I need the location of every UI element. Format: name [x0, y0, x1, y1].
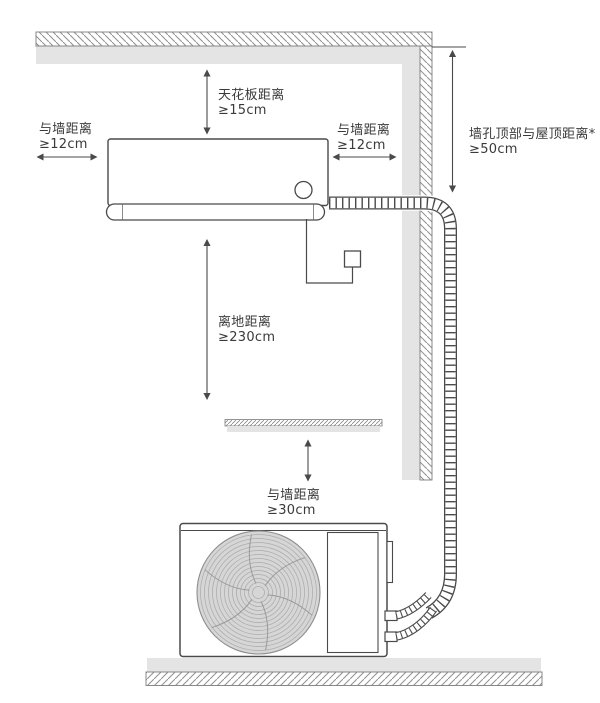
right-wall-structure [402, 46, 432, 480]
floor-distance-name: 离地距离 [218, 316, 275, 331]
right-wall-distance-label: 与墙距离 ≥12cm [337, 124, 390, 153]
floor-structure [146, 658, 542, 686]
power-cable [307, 219, 361, 283]
ceiling-distance-value: ≥15cm [218, 104, 285, 119]
outdoor-wall-distance-name: 与墙距离 [267, 489, 320, 504]
ceiling-structure [36, 32, 432, 64]
right-wall-distance-value: ≥12cm [337, 139, 390, 154]
valve-fitting-top [385, 611, 397, 621]
diagram-canvas [0, 0, 600, 703]
left-wall-distance-value: ≥12cm [39, 138, 92, 153]
indoor-floor-reference-shelf [225, 420, 382, 433]
floor-distance-value: ≥230cm [218, 331, 275, 346]
outdoor-unit-handle [387, 542, 393, 583]
valve-fitting-bottom [385, 632, 397, 642]
left-wall-distance-label: 与墙距离 ≥12cm [39, 123, 92, 152]
indoor-unit-indicator [295, 182, 312, 199]
right-wall-distance-name: 与墙距离 [337, 124, 390, 139]
floor-distance-label: 离地距离 ≥230cm [218, 316, 275, 345]
wall-hole-roof-distance-label: 墙孔顶部与屋顶距离* ≥50cm [469, 128, 596, 157]
wall-hole-roof-distance-name: 墙孔顶部与屋顶距离* [469, 128, 596, 143]
left-wall-distance-name: 与墙距离 [39, 123, 92, 138]
connection-hoses [396, 595, 434, 637]
outdoor-wall-distance-value: ≥30cm [267, 504, 320, 519]
indoor-unit-louver [107, 204, 325, 220]
outdoor-wall-distance-label: 与墙距离 ≥30cm [267, 489, 320, 518]
wall-hole-roof-distance-value: ≥50cm [469, 143, 596, 158]
indoor-unit [107, 139, 329, 220]
outdoor-unit [180, 524, 397, 657]
ceiling-distance-name: 天花板距离 [218, 89, 285, 104]
junction-box [345, 251, 361, 267]
outdoor-fan [197, 531, 320, 654]
installation-diagram: 天花板距离 ≥15cm 与墙距离 ≥12cm 与墙距离 ≥12cm 墙孔顶部与屋… [0, 0, 600, 703]
ceiling-distance-label: 天花板距离 ≥15cm [218, 89, 285, 118]
outdoor-unit-side-panel [328, 533, 379, 653]
